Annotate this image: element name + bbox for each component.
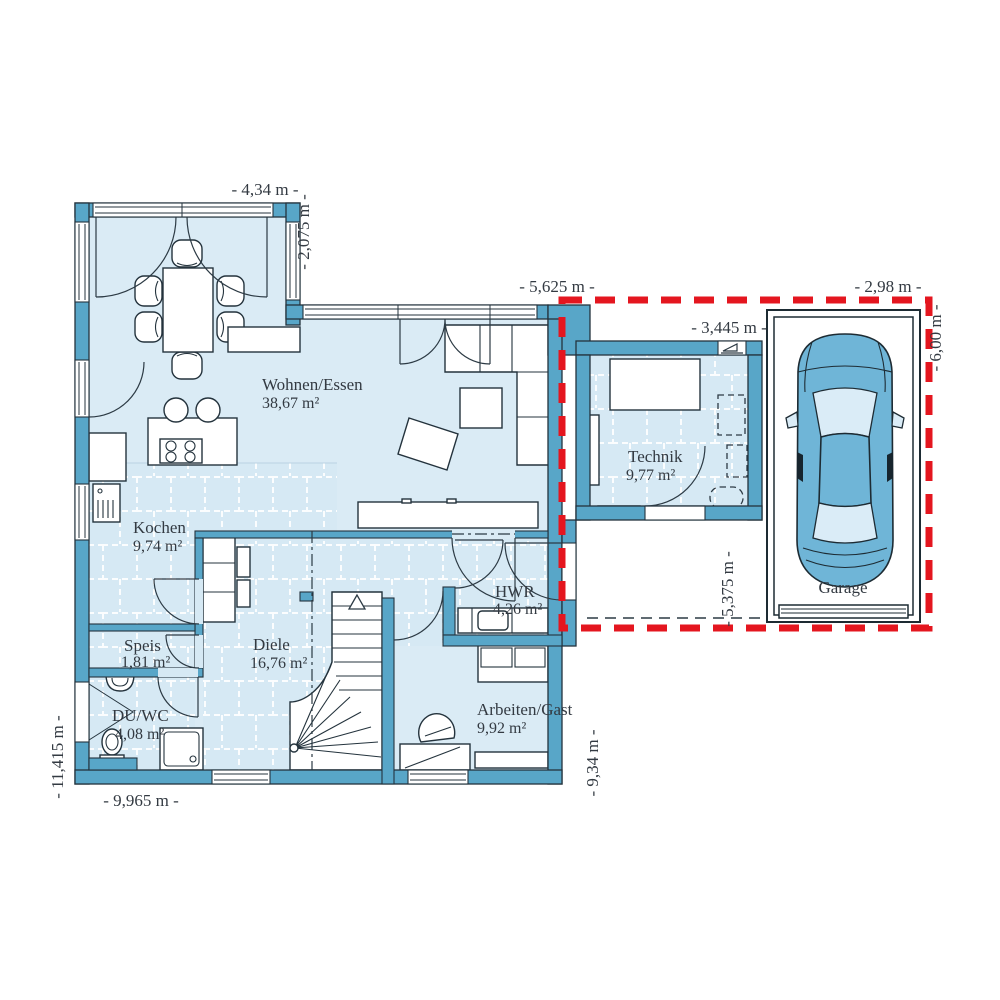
dim-left-height: - 11,415 m -: [48, 715, 67, 799]
floor-plan-page: Wohnen/Essen 38,67 m² Kochen 9,74 m² Spe…: [0, 0, 1000, 1000]
room-area-hwr: 4,26 m²: [493, 601, 542, 618]
room-area-diele: 16,76 m²: [250, 655, 307, 672]
car-top-view: [786, 334, 904, 587]
low-sideboard: [475, 752, 548, 768]
windshield: [813, 388, 877, 437]
floor-plan-svg: Wohnen/Essen 38,67 m² Kochen 9,74 m² Spe…: [0, 0, 1000, 1000]
room-area-speis: 1,81 m²: [121, 654, 170, 671]
dim-porch-height: - 5,375 m -: [718, 551, 737, 627]
room-area-wohnen: 38,67 m²: [262, 395, 319, 412]
dim-living-width: - 5,625 m -: [519, 277, 595, 296]
room-label-technik: Technik: [628, 447, 683, 466]
technik-door: [645, 506, 705, 520]
dim-technik-width: - 3,445 m -: [691, 318, 767, 337]
coffee-table: [460, 388, 502, 428]
dim-garage-height: - 6,00 m -: [926, 304, 945, 371]
sideboard: [228, 327, 300, 352]
room-label-arbeiten: Arbeiten/Gast: [477, 700, 573, 719]
entrance-arrow-icon: [718, 341, 746, 355]
room-label-wohnen: Wohnen/Essen: [262, 375, 363, 394]
rear-window: [813, 503, 877, 543]
room-area-arbeiten: 9,92 m²: [477, 720, 526, 737]
guest-sofa: [478, 645, 548, 682]
room-label-kochen: Kochen: [133, 518, 186, 537]
dim-garage-width: - 2,98 m -: [854, 277, 921, 296]
shower: [160, 728, 203, 770]
dim-bottom-width: - 9,965 m -: [103, 791, 179, 810]
room-label-duwc: DU/WC: [112, 706, 169, 725]
tilt-window: [75, 682, 89, 742]
room-label-diele: Diele: [253, 635, 290, 654]
heat-pump-unit: [610, 359, 700, 410]
garage-door: [779, 605, 908, 618]
room-area-duwc: 4,08 m²: [115, 726, 164, 743]
dim-top-left: - 4,34 m -: [231, 180, 298, 199]
kitchen-sink: [93, 484, 120, 522]
dim-right-height: - 9,34 m -: [583, 729, 602, 796]
dim-dining-height: - 2,075 m -: [294, 194, 313, 270]
room-area-kochen: 9,74 m²: [133, 538, 182, 555]
stair-post: [290, 744, 298, 752]
room-label-garage: Garage: [818, 578, 867, 597]
tv-lowboard: [358, 499, 538, 528]
room-area-technik: 9,77 m²: [626, 467, 675, 484]
room-label-speis: Speis: [124, 636, 161, 655]
garage: [767, 310, 920, 622]
room-label-hwr: HWR: [495, 582, 535, 601]
